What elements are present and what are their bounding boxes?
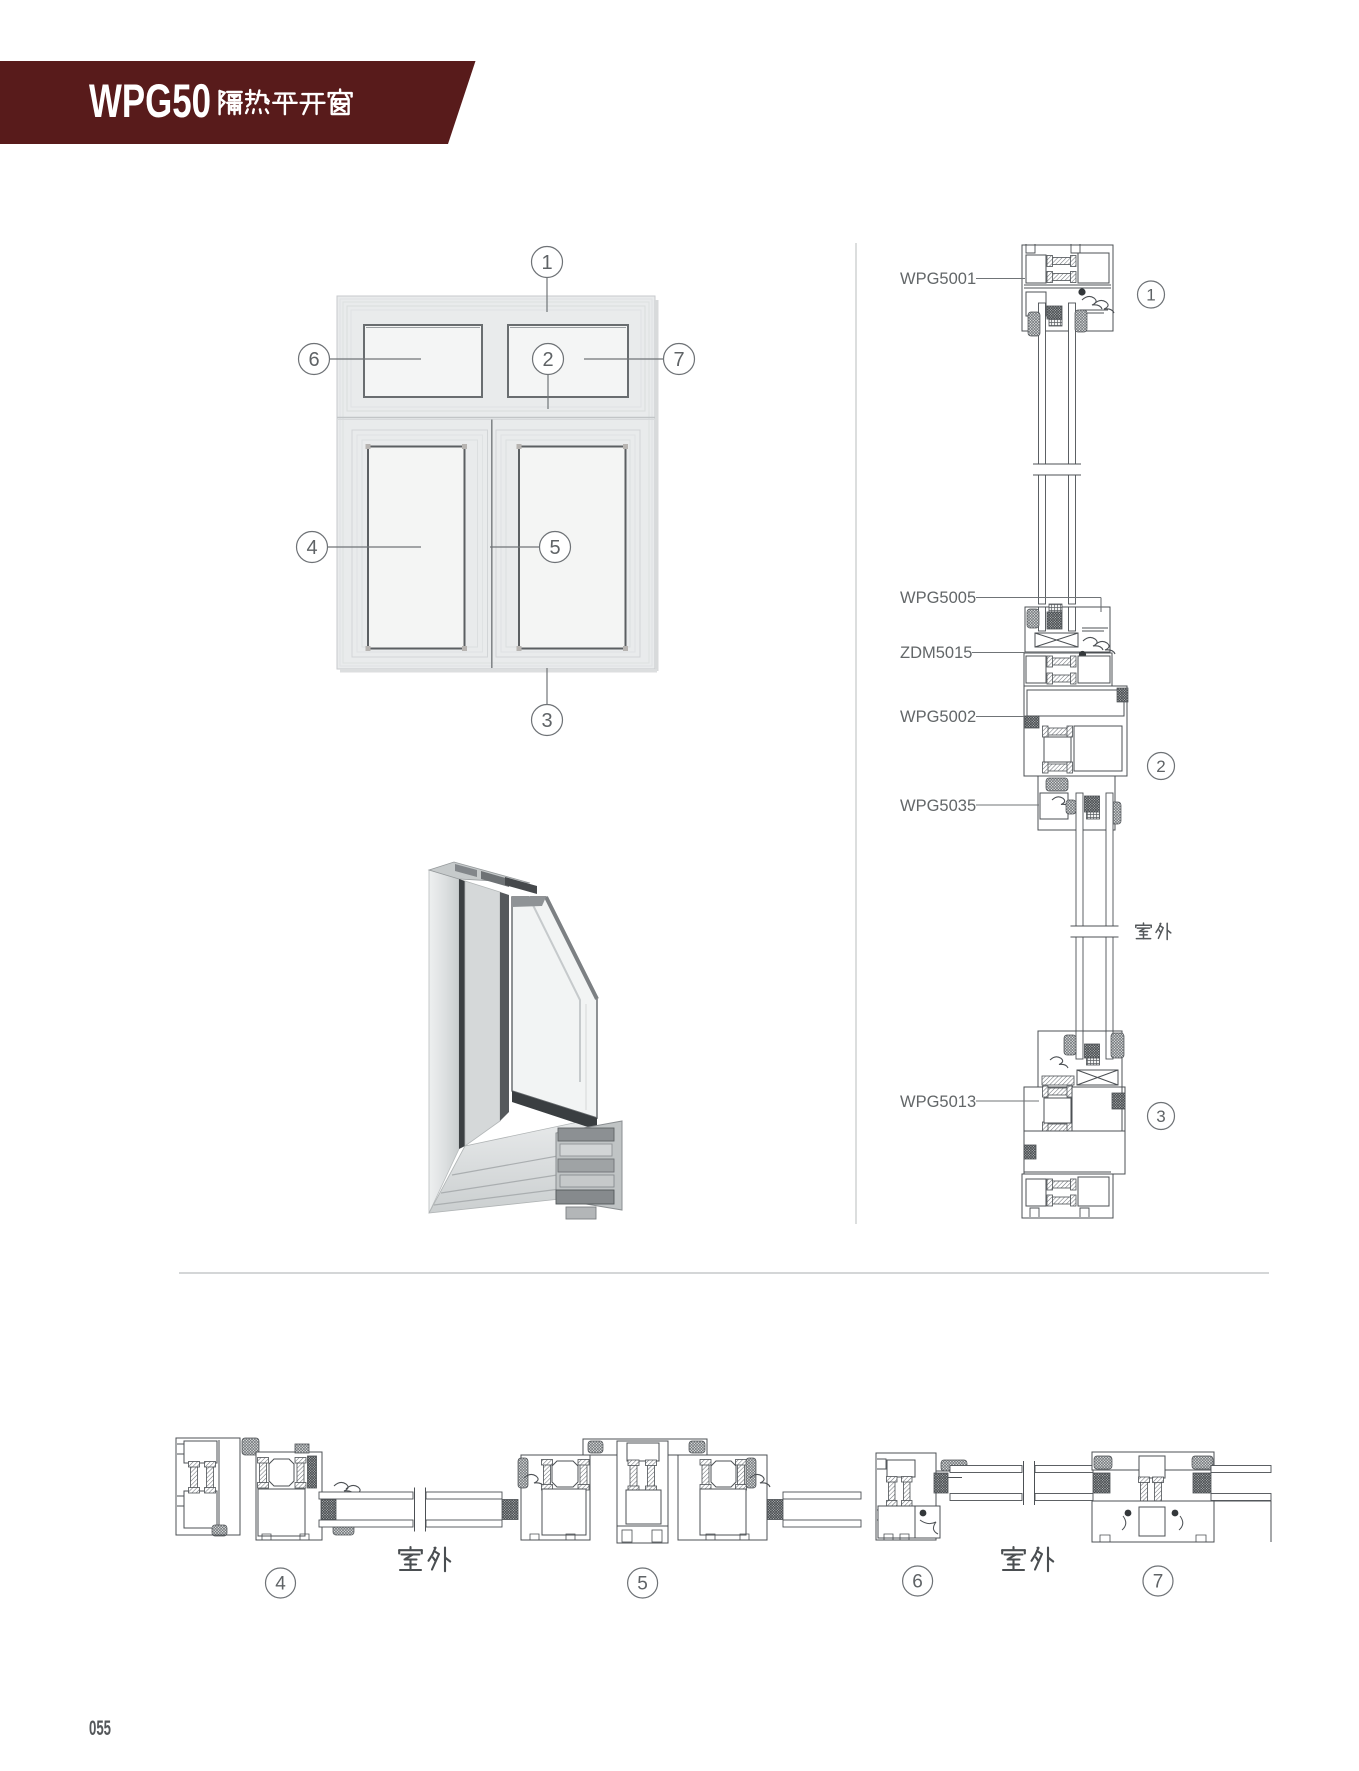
svg-text:5: 5 [549,537,560,559]
svg-text:5: 5 [637,1574,648,1595]
svg-text:055: 055 [89,1717,111,1740]
svg-text:2: 2 [542,349,553,371]
svg-text:WPG50: WPG50 [89,74,211,127]
svg-text:1: 1 [541,252,552,274]
svg-text:WPG5002: WPG5002 [900,708,976,726]
svg-text:4: 4 [275,1574,286,1595]
svg-text:1: 1 [1146,286,1155,305]
svg-text:2: 2 [1156,757,1165,776]
svg-text:ZDM5015: ZDM5015 [900,644,972,662]
svg-text:WPG5013: WPG5013 [900,1093,976,1111]
svg-text:6: 6 [308,349,319,371]
svg-text:WPG5001: WPG5001 [900,270,976,288]
svg-text:7: 7 [1153,1572,1164,1593]
svg-text:WPG5005: WPG5005 [900,589,976,607]
svg-text:4: 4 [306,537,317,559]
svg-text:3: 3 [1156,1107,1165,1126]
svg-text:7: 7 [673,349,684,371]
svg-text:6: 6 [912,1572,923,1593]
svg-text:WPG5035: WPG5035 [900,797,976,815]
svg-text:3: 3 [541,710,552,732]
